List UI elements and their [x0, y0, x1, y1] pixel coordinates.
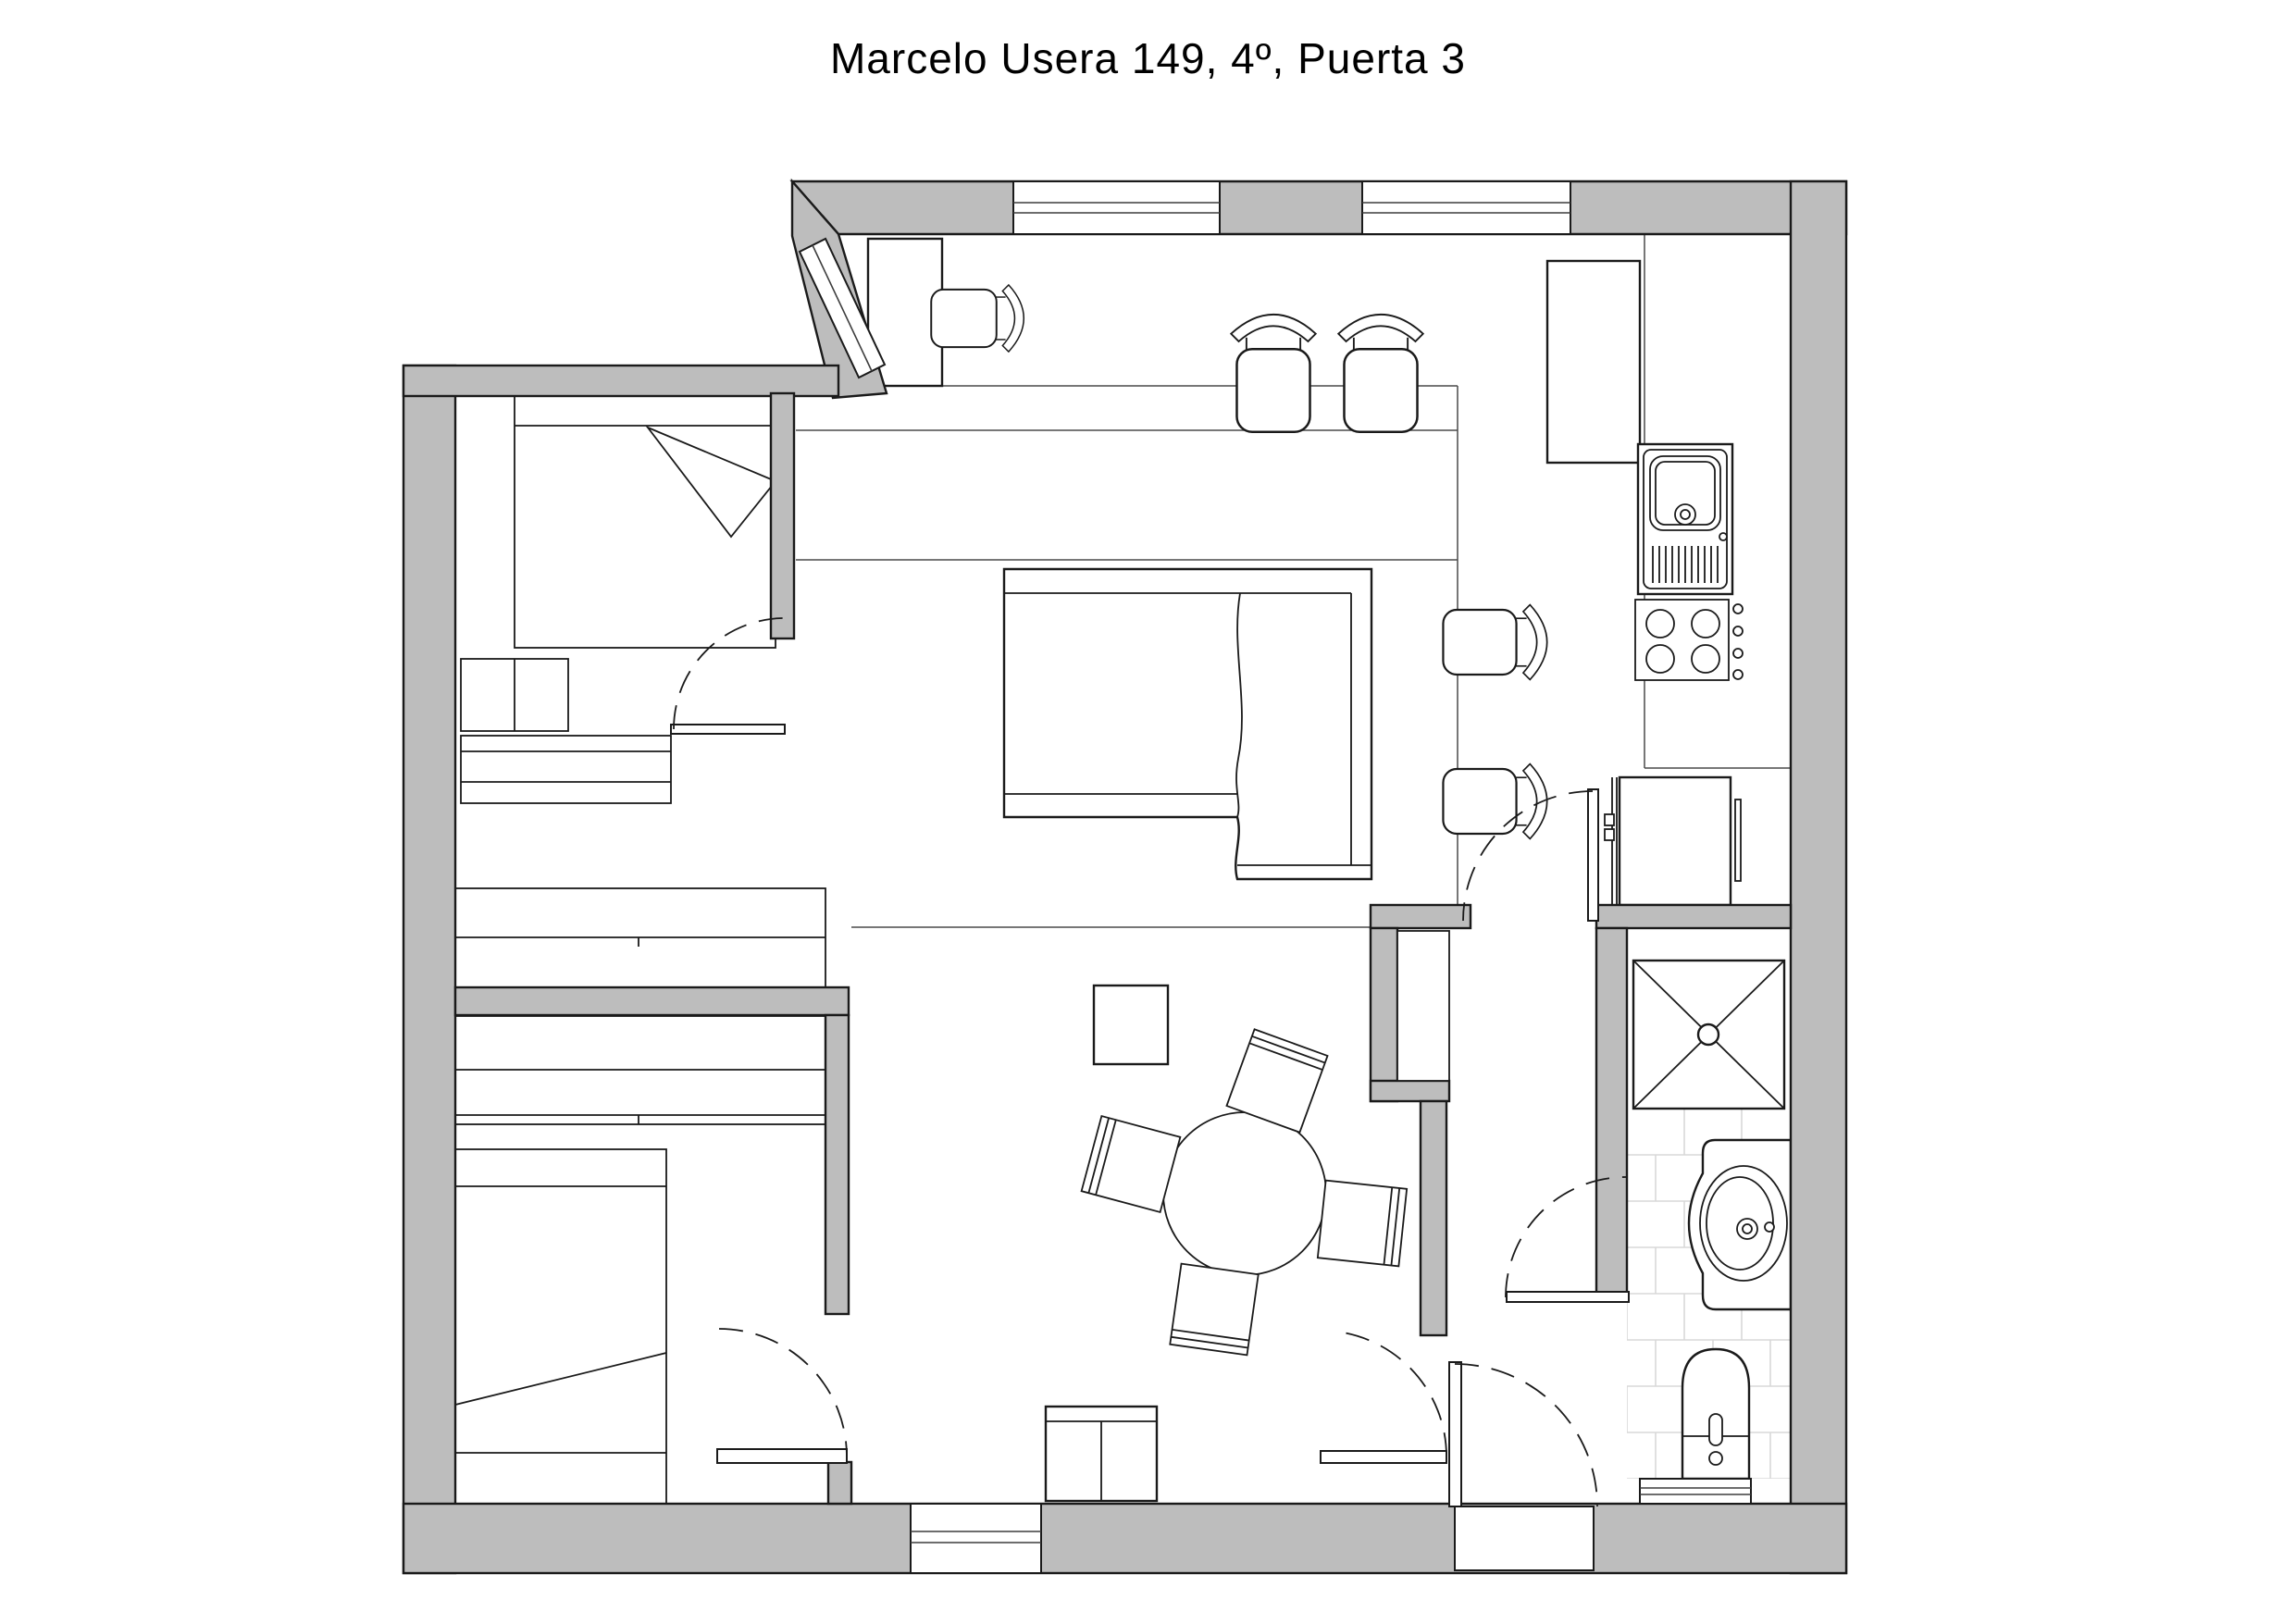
- floor-plan-page: { "title": "Marcelo Usera 149, 4º, Puert…: [0, 0, 2296, 1624]
- bathroom-west-wall: [1596, 928, 1627, 1293]
- bathroom-north-wall: [1596, 905, 1791, 928]
- corner-sofa: [1004, 569, 1371, 879]
- dresser: [461, 659, 568, 731]
- round-dining-table: [1163, 1112, 1326, 1275]
- corridor-wall-west-stub: [1371, 905, 1471, 928]
- bedroom-divider-wall: [455, 987, 849, 1015]
- bed-2: [455, 1149, 666, 1504]
- office-chair-icon: [931, 285, 1024, 352]
- wardrobe-2: [455, 1016, 825, 1124]
- bar-chair-2-icon: [1338, 315, 1423, 432]
- window-bathroom: [1640, 1479, 1751, 1504]
- dining-chair-e-icon: [1318, 1181, 1407, 1267]
- bedroom1-top-wall: [403, 366, 838, 396]
- dining-chair-s-icon: [1170, 1264, 1258, 1356]
- wardrobe-b: [455, 888, 825, 987]
- window-living-south: [911, 1504, 1041, 1573]
- bottom-wall: [403, 1504, 1846, 1573]
- side-table: [1094, 986, 1168, 1064]
- entry-opening: [1455, 1506, 1594, 1570]
- floor-plan-drawing: [0, 0, 2296, 1624]
- top-wall: [792, 181, 1846, 234]
- right-wall: [1791, 181, 1846, 1573]
- bedroom2-east-wall: [825, 1015, 849, 1314]
- bedroom1-east-wall: [771, 393, 794, 638]
- washing-machine: [1605, 777, 1741, 905]
- niche-cabinet: [1397, 931, 1449, 1081]
- fridge: [1547, 261, 1640, 463]
- bedroom2-door: [717, 1329, 847, 1463]
- bathroom-sink: [1689, 1140, 1791, 1309]
- window-top-1: [1013, 181, 1220, 234]
- kitchen-sink: [1638, 444, 1732, 594]
- corridor-column: [1421, 1101, 1446, 1335]
- left-wall: [403, 366, 455, 1573]
- niche-wall-1: [1371, 928, 1397, 1101]
- entry-door: [1449, 1362, 1597, 1506]
- window-top-2: [1362, 181, 1570, 234]
- side-chair-1-icon: [1443, 605, 1546, 680]
- toilet: [1682, 1349, 1749, 1479]
- niche-wall-2: [1371, 1081, 1449, 1101]
- bed-1: [515, 396, 776, 648]
- stove: [1635, 600, 1743, 680]
- bedroom2-door-jamb: [828, 1462, 851, 1504]
- shower: [1633, 961, 1784, 1109]
- tv-cabinet: [1046, 1407, 1157, 1501]
- vestibule-door: [1321, 1333, 1446, 1463]
- bar-chair-1-icon: [1231, 315, 1316, 432]
- wardrobe-a: [461, 736, 671, 803]
- side-chair-2-icon: [1443, 764, 1546, 839]
